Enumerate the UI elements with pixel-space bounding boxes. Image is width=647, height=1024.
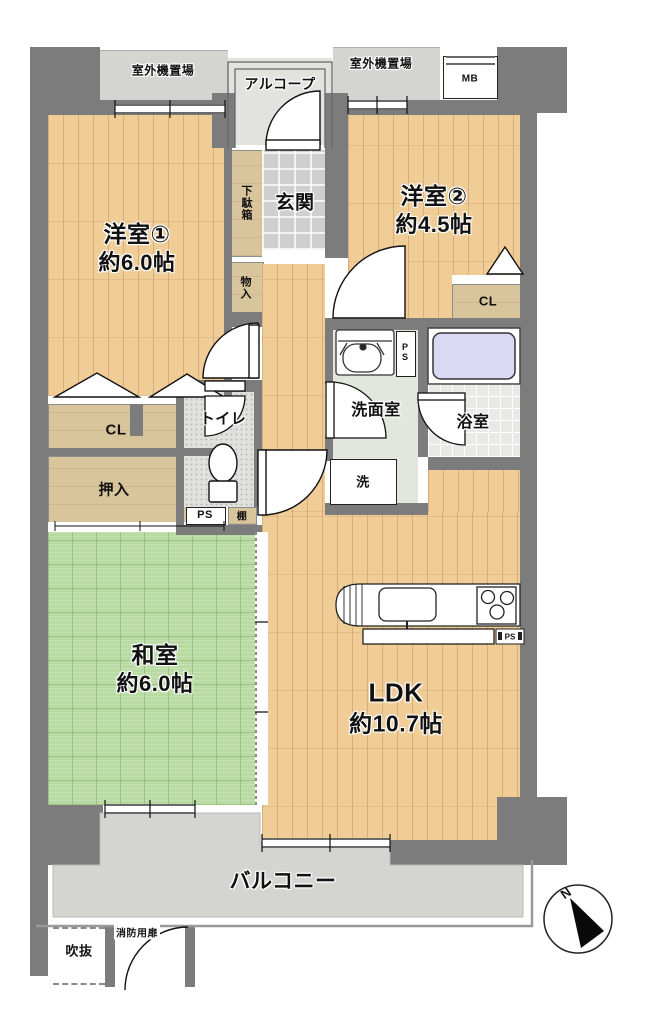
japanese-room-label: 和室 約6.0帖: [116, 641, 193, 697]
toilet-label: トイレ: [200, 408, 247, 429]
wall-top-a: [48, 100, 230, 115]
ldk-name: LDK: [349, 676, 443, 709]
wall-topright-corner: [497, 47, 567, 113]
wall-toilet-right: [254, 380, 262, 507]
japanese-room-size: 約6.0帖: [116, 670, 193, 698]
closet-right-door-band: [452, 275, 520, 284]
western-room1-size: 約6.0帖: [98, 249, 175, 277]
shelf-label: 棚: [237, 508, 248, 523]
balcony-label: バルコニー: [229, 865, 336, 895]
wall-firedoor-post-right: [185, 925, 195, 987]
fire-door-label: 消防用扉: [114, 925, 160, 940]
wall-washroom-left-up: [325, 330, 333, 384]
wall-toilet-top: [176, 380, 254, 392]
compass-needle: [570, 898, 604, 948]
closet-left-label: CL: [106, 422, 127, 439]
ps-toilet-label: PS: [197, 509, 213, 521]
wall-top-b: [330, 100, 523, 115]
western-room1-label: 洋室① 約6.0帖: [98, 220, 175, 276]
genkan-label: 玄関: [275, 188, 314, 215]
oshiire-label: 押入: [98, 479, 129, 500]
closet-right-label: CL: [479, 294, 497, 309]
ldk-label: LDK 約10.7帖: [349, 676, 443, 737]
wall-toilet-bottom: [176, 525, 262, 535]
ldk-floor-upper: [428, 470, 520, 515]
bathtub: [428, 328, 520, 384]
wall-ldk-corner-block: [497, 797, 567, 865]
wall-sanitary-top: [325, 318, 523, 330]
western-room2-label: 洋室② 約4.5帖: [395, 182, 472, 238]
void-label: 吹抜: [65, 941, 92, 960]
wall-entrance-right: [325, 93, 348, 258]
bathroom-label: 浴室: [456, 408, 489, 432]
wall-bath-divider: [418, 330, 428, 457]
wall-toilet-left: [176, 380, 184, 527]
floor-plan: 室外機置場 アルコープ 室外機置場 MB 玄関 下駄箱 物入 洋室① 約6.0帖…: [0, 0, 647, 1024]
laundry-label: 洗: [356, 472, 370, 491]
western-room1-name: 洋室①: [98, 220, 175, 249]
wall-ldk-step: [390, 840, 497, 865]
outdoor-unit-right-label: 室外機置場: [350, 55, 413, 72]
wall-washroom-left-dn: [325, 436, 333, 461]
outdoor-unit-left-label: 室外機置場: [132, 62, 195, 79]
western-room2-size: 約4.5帖: [395, 211, 472, 239]
washroom-label: 洗面室: [351, 396, 401, 420]
wall-bath-bottom: [428, 457, 523, 470]
wall-washitsu-balcony: [48, 805, 103, 865]
shoe-cabinet-label: 下駄箱: [238, 185, 254, 221]
hall-storage-label: 物入: [237, 276, 253, 300]
wall-cl-oshiire-div: [48, 448, 230, 456]
meter-box-label: MB: [462, 74, 479, 85]
alcove-area: [228, 58, 332, 145]
ps-kitchen-label: PS: [505, 633, 516, 642]
wall-under-storage: [229, 312, 262, 327]
wall-right-outer: [520, 113, 537, 865]
compass: [544, 885, 612, 953]
genkan-step: [262, 250, 325, 264]
wall-room1-column: [224, 115, 232, 396]
japanese-room-name: 和室: [116, 641, 193, 670]
closet-divider-wall: [130, 404, 143, 436]
wall-left-outer: [30, 47, 48, 976]
compass-north-label: N: [558, 884, 575, 902]
ps-washroom-label: PS: [400, 342, 410, 362]
hallway-floor: [262, 264, 325, 512]
western-room2-name: 洋室②: [395, 182, 472, 211]
alcove-label: アルコープ: [244, 74, 315, 94]
ldk-size: 約10.7帖: [349, 709, 443, 738]
